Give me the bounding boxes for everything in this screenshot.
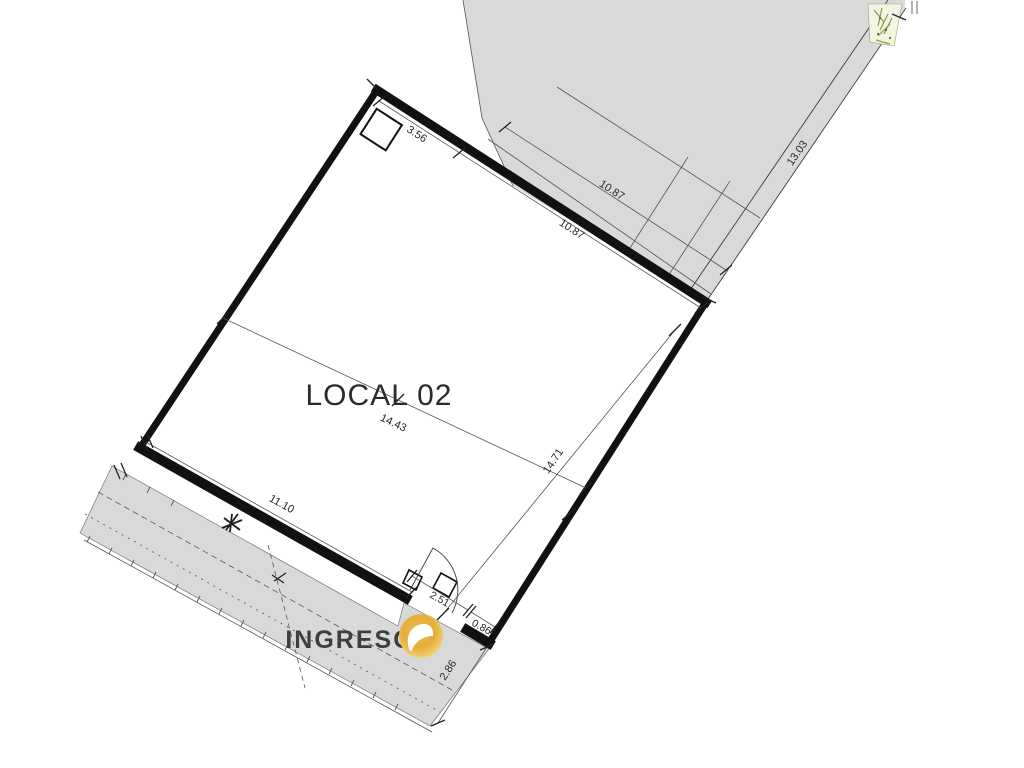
entrance-door <box>403 548 458 613</box>
floor-plan-canvas: 3.56 10.87 10.87 13.03 14.43 14.71 11.10… <box>0 0 1024 768</box>
neighbor-area-fill <box>463 0 905 302</box>
dim-right-inner: 14.71 <box>541 447 566 477</box>
dim-top-left-inner: 3.56 <box>404 124 429 146</box>
entrance-label: INGRESO <box>285 626 414 654</box>
dim-diagonal: 14.43 <box>378 412 408 435</box>
column-top-left <box>361 109 402 151</box>
right-wall <box>489 302 706 643</box>
door-leaf <box>410 548 433 590</box>
neighbor-area <box>463 0 905 302</box>
gold-circle-arrow-icon <box>399 614 443 658</box>
floor-plan-page: 3.56 10.87 10.87 13.03 14.43 14.71 11.10… <box>0 0 1024 768</box>
planter <box>868 4 902 46</box>
room-label: LOCAL 02 <box>306 379 453 412</box>
